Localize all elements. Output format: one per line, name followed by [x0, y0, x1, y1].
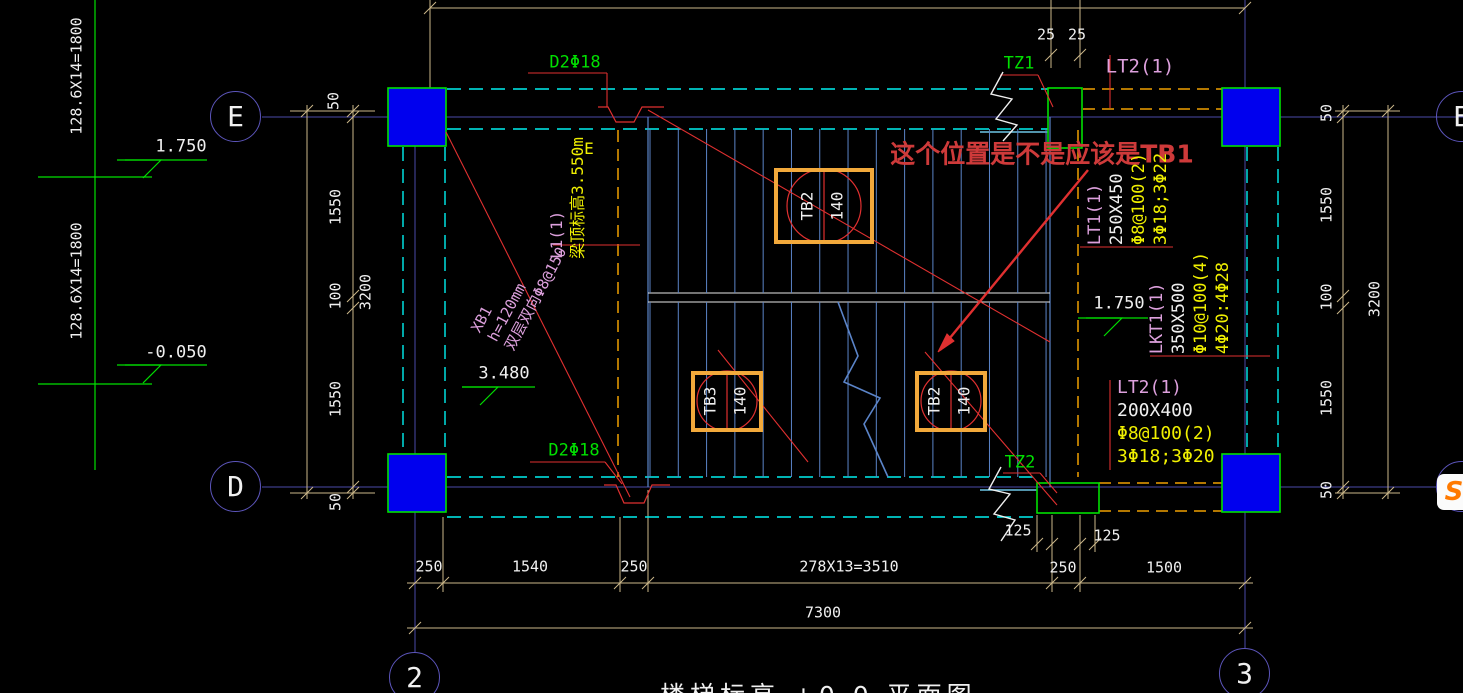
dim-3200-right: 3200	[1368, 281, 1383, 317]
level-neg-0050: -0.050	[145, 345, 206, 362]
beam-lt2-spec: LT2(1)200X400Φ8@100(2)3Φ18;3Φ20	[1117, 379, 1215, 471]
beam-lkt1-spec-line: LKT1(1)	[1149, 252, 1171, 354]
beam-lt2-spec-line: LT2(1)	[1117, 379, 1215, 402]
rebar-d2-bottom: D2Φ18	[548, 443, 599, 460]
dim-50-right-top: 50	[1320, 104, 1335, 122]
slab-tag-tb2-bottom: TB2140	[915, 371, 987, 432]
sogou-letter: S	[1445, 477, 1463, 507]
col-tz2: TZ2	[1005, 455, 1036, 472]
beam-lt1-spec-line: 3Φ18;3Φ22	[1153, 153, 1175, 245]
dim-125-b: 125	[1093, 529, 1120, 544]
level-3480: 3.480	[478, 366, 529, 383]
beam-lt2-spec-line: 3Φ18;3Φ20	[1117, 448, 1215, 471]
beam-lt2-spec-line: Φ8@100(2)	[1117, 425, 1215, 448]
riser-calc-bottom: 128.6X14=1800	[70, 222, 85, 339]
cad-canvas[interactable]: 128.6X14=1800128.6X14=18001.750-0.0503.4…	[0, 0, 1463, 693]
dim-50-left-top: 50	[327, 92, 342, 110]
slab-tag-tb2-bottom-label: TB2	[925, 387, 944, 416]
col-tz1: TZ1	[1004, 56, 1035, 73]
dim-50-left-bot: 50	[329, 493, 344, 511]
beam-lt1-spec-line: Φ8@100(2)	[1131, 153, 1153, 245]
grid-D-left: D	[210, 461, 261, 512]
drawing-title: 楼梯标高 +0.0 平面图	[660, 676, 1000, 693]
beam-lt1-spec-line: LT1(1)	[1087, 153, 1109, 245]
dim-250-a: 250	[415, 560, 442, 575]
beam-lt1-spec: LT1(1)250X450Φ8@100(2)3Φ18;3Φ22	[1087, 153, 1175, 245]
level-1750-left: 1.750	[155, 139, 206, 156]
dim-1500: 1500	[1146, 561, 1182, 576]
beam-l1-spec-line: 梁顶标高3.550m	[570, 137, 591, 259]
dim-1540: 1540	[512, 560, 548, 575]
dim-25-b: 25	[1068, 28, 1086, 43]
beam-l1-spec-line: L1(1)	[549, 137, 570, 259]
dim-250-b: 250	[620, 560, 647, 575]
dim-50-right-bot: 50	[1320, 481, 1335, 499]
beam-lt2-top-tag: LT2(1)	[1106, 58, 1175, 77]
dim-100-left: 100	[329, 282, 344, 309]
dim-100-right: 100	[1320, 283, 1335, 310]
dim-250-c: 250	[1049, 561, 1076, 576]
slab-tag-tb3: TB3140	[691, 371, 763, 432]
slab-tag-tb2-bottom-thickness: 140	[955, 387, 974, 416]
grid-E-left: E	[210, 91, 261, 142]
dim-1550-left-top: 1550	[329, 189, 344, 225]
slab-tag-tb2-top-label: TB2	[798, 192, 817, 221]
slab-tag-tb3-label: TB3	[701, 387, 720, 416]
beam-lt1-spec-line: 250X450	[1109, 153, 1131, 245]
dim-3200-left: 3200	[359, 274, 374, 310]
beam-lt2-spec-line: 200X400	[1117, 402, 1215, 425]
dim-125-a: 125	[1004, 524, 1031, 539]
riser-calc-top: 128.6X14=1800	[70, 17, 85, 134]
dim-1550-right-bot: 1550	[1320, 380, 1335, 416]
grid-3: 3	[1219, 648, 1270, 693]
slab-tag-tb2-top-thickness: 140	[828, 192, 847, 221]
beam-lkt1-spec-line: 350X500	[1171, 252, 1193, 354]
slab-tag-tb2-top: TB2140	[774, 168, 874, 244]
sogou-input-icon[interactable]: S	[1437, 474, 1463, 510]
beam-lkt1-spec-line: Φ10@100(4)	[1193, 252, 1215, 354]
dim-1550-left-bot: 1550	[329, 381, 344, 417]
beam-l1-spec: L1(1)梁顶标高3.550m	[549, 137, 591, 259]
dim-tread-run: 278X13=3510	[799, 560, 898, 575]
slab-tag-tb3-thickness: 140	[731, 387, 750, 416]
dim-25-a: 25	[1037, 28, 1055, 43]
beam-lkt1-spec-line: 4Φ20:4Φ28	[1215, 252, 1237, 354]
rebar-d2-top: D2Φ18	[549, 55, 600, 72]
beam-lkt1-spec: LKT1(1)350X500Φ10@100(4)4Φ20:4Φ28	[1149, 252, 1237, 354]
level-1750-right: 1.750	[1093, 296, 1144, 313]
dim-7300: 7300	[805, 606, 841, 621]
dim-1550-right-top: 1550	[1320, 187, 1335, 223]
